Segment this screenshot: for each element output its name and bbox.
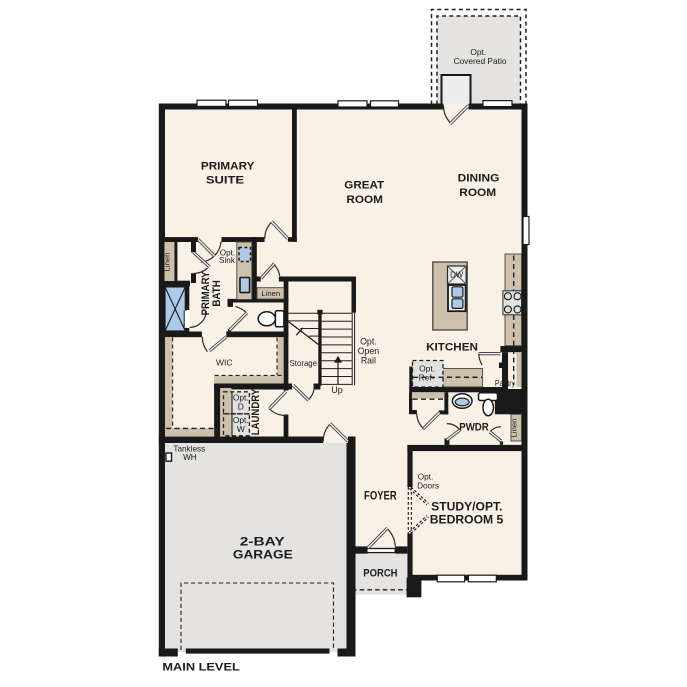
svg-text:Ref-: Ref- xyxy=(419,373,435,383)
svg-text:Up: Up xyxy=(331,385,343,395)
svg-text:D: D xyxy=(238,402,244,412)
svg-text:BATH: BATH xyxy=(211,280,223,307)
svg-text:Linen: Linen xyxy=(261,289,280,298)
svg-text:LAUNDRY: LAUNDRY xyxy=(250,388,262,435)
svg-text:DINING: DINING xyxy=(458,173,500,185)
svg-text:PRIMARY: PRIMARY xyxy=(201,161,255,173)
svg-text:SUITE: SUITE xyxy=(206,175,245,187)
svg-text:Open: Open xyxy=(358,346,380,356)
svg-text:WIC: WIC xyxy=(216,358,233,368)
svg-text:Storage: Storage xyxy=(290,358,318,368)
svg-text:ROOM: ROOM xyxy=(459,187,496,199)
svg-text:GREAT: GREAT xyxy=(344,179,384,191)
svg-text:MAIN LEVEL: MAIN LEVEL xyxy=(162,662,239,674)
svg-text:DW: DW xyxy=(450,270,464,279)
svg-text:Rail: Rail xyxy=(361,355,376,365)
svg-text:GARAGE: GARAGE xyxy=(233,549,293,562)
svg-text:Doors: Doors xyxy=(417,482,439,491)
svg-text:FOYER: FOYER xyxy=(364,490,397,503)
svg-text:Sink: Sink xyxy=(219,256,236,265)
svg-text:Opt.: Opt. xyxy=(360,336,377,346)
svg-text:KITCHEN: KITCHEN xyxy=(426,342,478,354)
svg-text:ROOM: ROOM xyxy=(346,194,383,206)
svg-text:PORCH: PORCH xyxy=(363,568,397,580)
svg-text:2-BAY: 2-BAY xyxy=(240,535,285,548)
svg-text:Linen: Linen xyxy=(163,253,172,272)
svg-text:Pantry: Pantry xyxy=(495,379,516,388)
svg-text:Linen: Linen xyxy=(510,419,519,438)
svg-text:BEDROOM 5: BEDROOM 5 xyxy=(430,513,504,527)
svg-text:PWDR: PWDR xyxy=(459,422,489,434)
svg-text:Opt.: Opt. xyxy=(418,473,433,482)
svg-text:STUDY/OPT.: STUDY/OPT. xyxy=(431,500,502,514)
svg-text:WH: WH xyxy=(183,453,197,462)
svg-text:Covered Patio: Covered Patio xyxy=(453,56,506,66)
svg-text:W: W xyxy=(237,424,245,434)
